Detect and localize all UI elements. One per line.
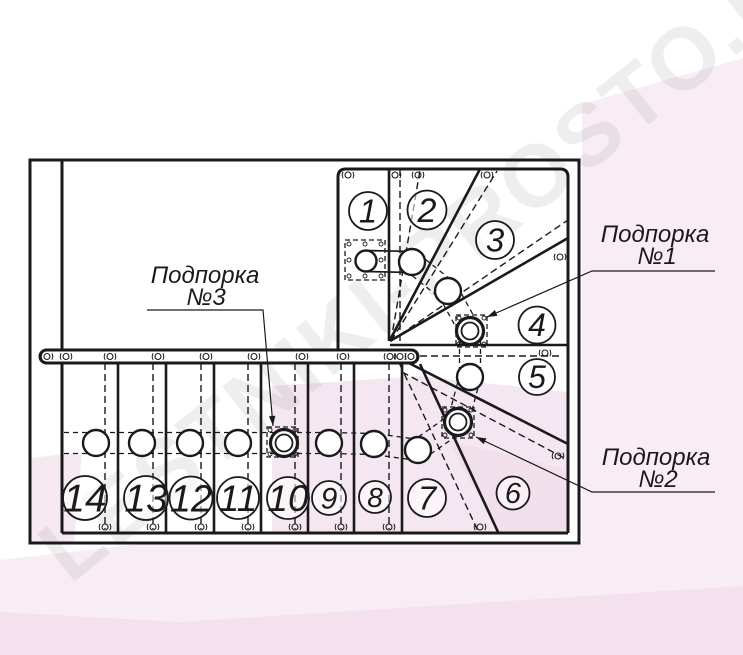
screw-hole-mark (482, 316, 486, 320)
fastener-circle (557, 254, 563, 260)
baluster (83, 430, 109, 456)
staircase-plan: LESTNIKI-PROSTO.RU 1234567891011121314 П… (0, 0, 743, 655)
step-number: 12 (170, 478, 212, 520)
baluster (361, 431, 387, 457)
support-3-label: Подпорка №3 (151, 262, 260, 311)
fastener-arc (353, 172, 354, 178)
baluster (177, 430, 203, 456)
baluster (399, 249, 425, 275)
fastener-arc (342, 172, 343, 178)
step-number: 3 (486, 222, 505, 259)
fastener-arc (206, 524, 207, 530)
fastener-circle (542, 350, 548, 356)
step-number: 9 (321, 483, 338, 516)
support-post-3 (271, 430, 298, 457)
step-badge-1: 1 (349, 192, 387, 230)
support-2-label-line2: №2 (638, 466, 677, 493)
fastener-arc (550, 350, 551, 356)
fastener-arc (195, 524, 196, 530)
screw-hole-mark (363, 242, 367, 246)
step-number: 5 (528, 359, 546, 395)
step-number: 14 (63, 478, 106, 521)
support-post-2 (445, 409, 472, 436)
staircase-plan-drawing: LESTNIKI-PROSTO.RU 1234567891011121314 П… (0, 0, 743, 655)
fastener-arc (253, 524, 254, 530)
fastener-arc (554, 254, 555, 260)
step-number: 2 (417, 192, 437, 230)
fastener-arc (565, 254, 566, 260)
wall-rail-bar (40, 350, 418, 363)
baluster (225, 430, 251, 456)
step-number: 4 (528, 307, 546, 343)
fastener-circle (415, 172, 421, 178)
fastener-icon (412, 172, 423, 178)
support-1-label-line2: №1 (637, 243, 676, 270)
fastener-arc (539, 350, 540, 356)
baluster (457, 364, 483, 390)
step-badge-2: 2 (408, 191, 447, 230)
step-badge-12: 12 (170, 477, 213, 521)
screw-hole-mark (347, 242, 351, 246)
step-number: 8 (367, 482, 383, 513)
fastener-icon (342, 172, 353, 178)
fastener-icon (242, 524, 253, 530)
step-number: 6 (505, 478, 522, 510)
step-badge-4: 4 (519, 307, 556, 344)
step-badge-3: 3 (476, 221, 514, 259)
baluster (316, 430, 342, 456)
fastener-circle (198, 524, 204, 530)
fastener-icon (554, 254, 565, 260)
step-number: 7 (418, 480, 438, 517)
step-badge-8: 8 (359, 481, 391, 513)
step-badge-10: 10 (267, 477, 309, 519)
baluster (405, 437, 431, 463)
step-badge-9: 9 (312, 481, 346, 516)
support-3-label-line2: №3 (186, 284, 226, 311)
baluster (435, 278, 461, 304)
step-number: 11 (219, 478, 257, 519)
fastener-arc (423, 172, 424, 178)
step-badge-6: 6 (497, 477, 530, 511)
fastener-arc (242, 524, 243, 530)
step-badge-11: 11 (217, 477, 259, 519)
fastener-circle (345, 172, 351, 178)
fastener-icon (195, 524, 206, 530)
newel-post (356, 251, 377, 272)
fastener-circle (392, 172, 398, 178)
fastener-icon (539, 350, 550, 356)
step-badge-5: 5 (519, 359, 555, 395)
step-badge-7: 7 (408, 479, 446, 517)
fastener-arc (412, 172, 413, 178)
baluster (129, 430, 155, 456)
step-number: 1 (359, 193, 377, 230)
step-number: 13 (124, 478, 168, 521)
step-badge-13: 13 (124, 476, 168, 521)
fastener-icon (389, 172, 400, 178)
support-post-1 (457, 318, 484, 345)
fastener-circle (245, 524, 251, 530)
step-badge-14: 14 (63, 476, 107, 521)
step-number: 10 (267, 478, 309, 519)
